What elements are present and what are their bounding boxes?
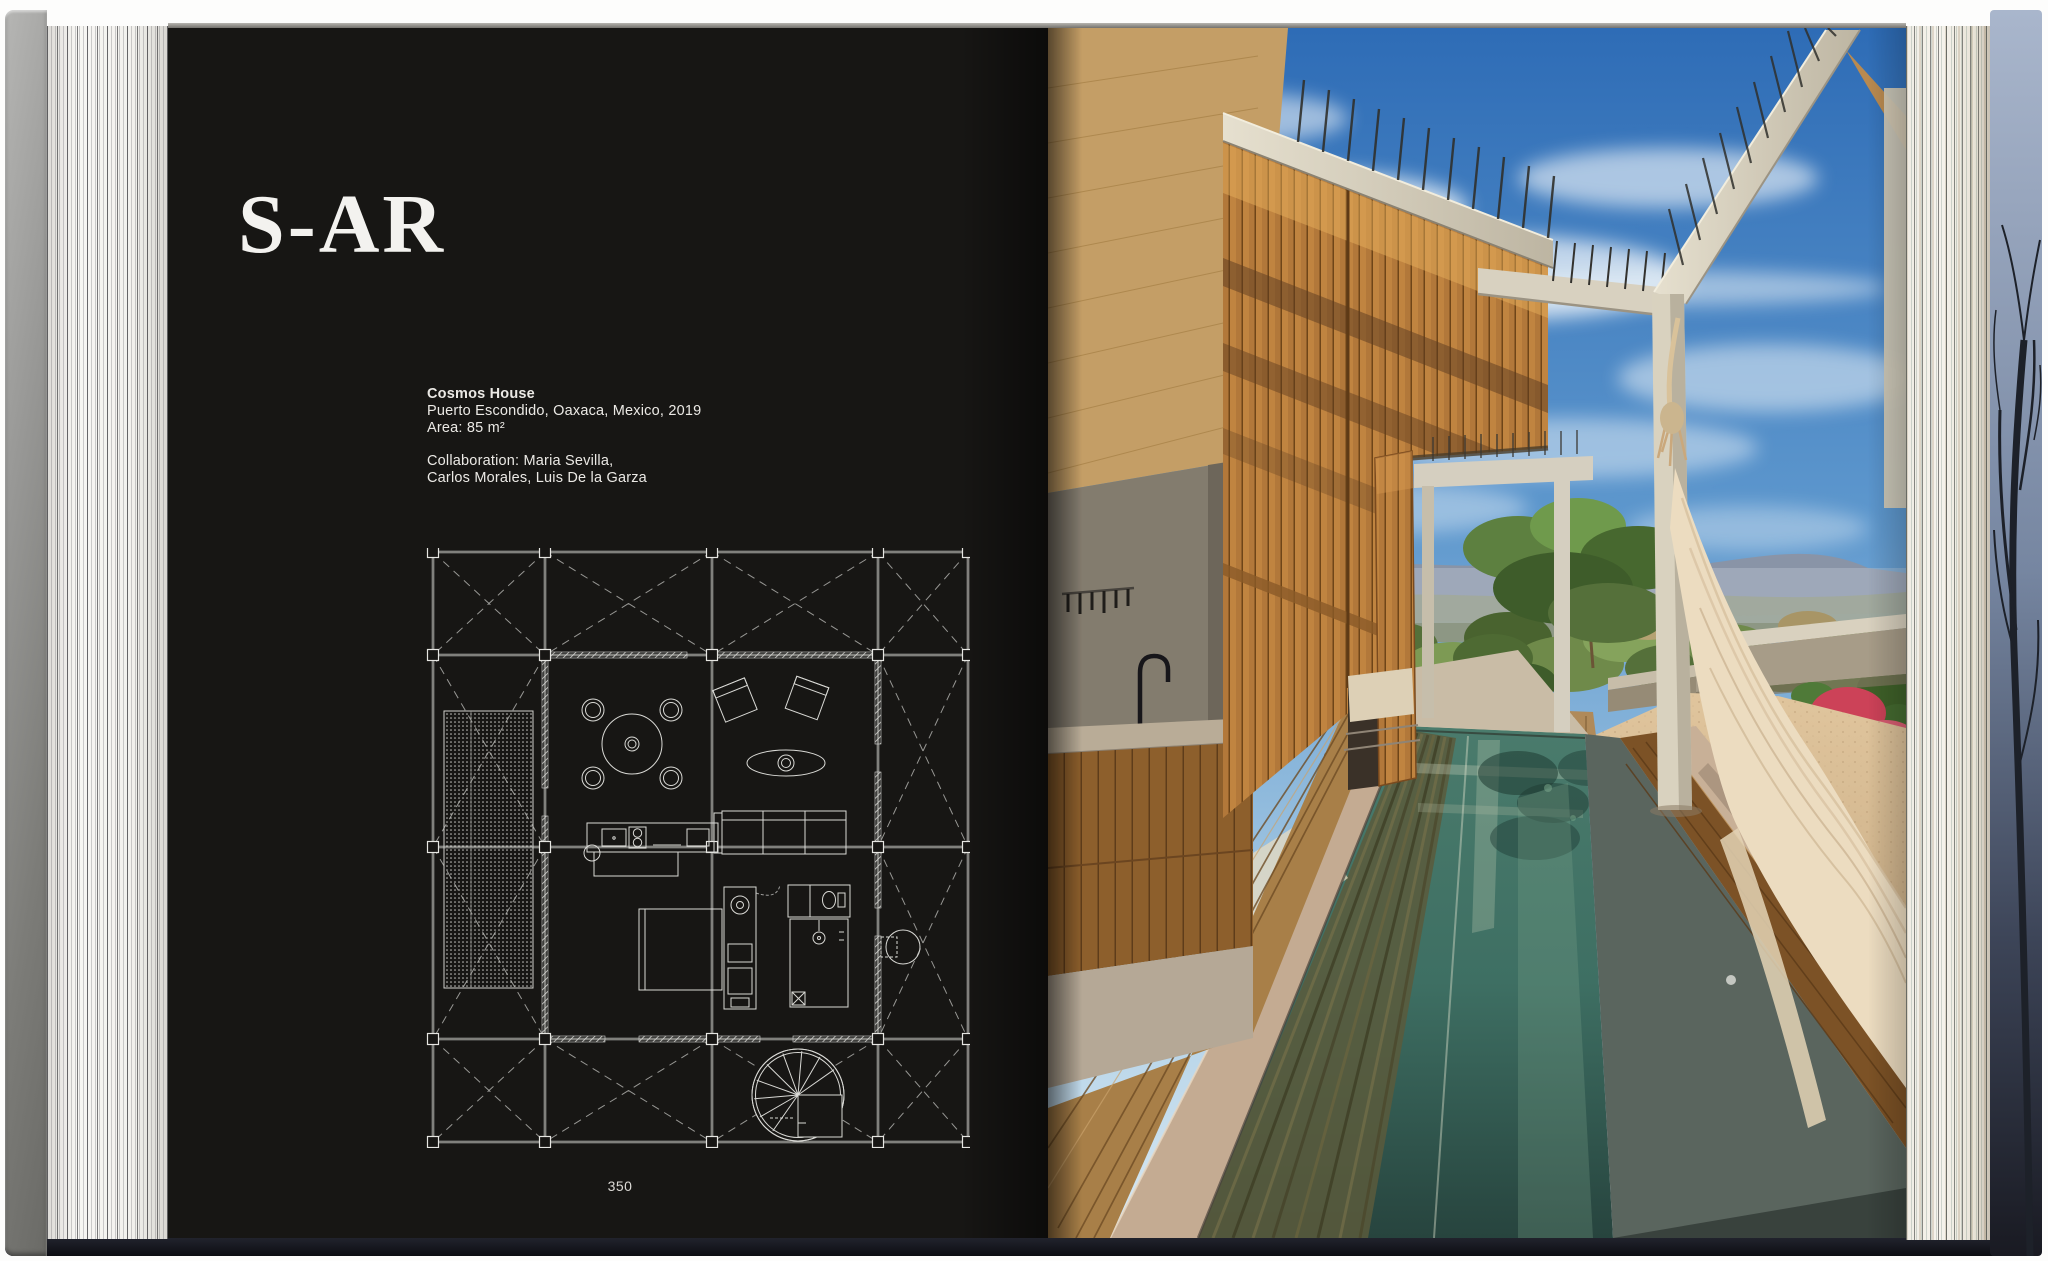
book-spread-photo: S-AR Cosmos House Puerto Escondido, Oaxa… <box>0 0 2048 1261</box>
right-page-photograph <box>1048 28 1906 1238</box>
project-location: Puerto Escondido, Oaxaca, Mexico, 2019 <box>427 403 701 420</box>
plan-kitchen <box>584 823 718 876</box>
plan-bathroom <box>788 885 850 1007</box>
book-cover-right <box>1990 10 2042 1256</box>
project-area: Area: 85 m² <box>427 420 701 437</box>
project-collaboration-1: Collaboration: Maria Sevilla, <box>427 453 701 470</box>
plan-dining-table <box>582 699 682 789</box>
plan-net-terrace <box>444 711 533 988</box>
left-page-stack-edges <box>47 26 168 1239</box>
right-page-stack-edges <box>1906 26 1990 1240</box>
architect-title: S-AR <box>238 176 446 273</box>
project-collaboration-2: Carlos Morales, Luis De la Garza <box>427 470 701 487</box>
plan-bed <box>639 909 722 990</box>
book-cover-left-edge <box>5 10 47 1256</box>
project-info: Cosmos House Puerto Escondido, Oaxaca, M… <box>427 386 701 487</box>
page-number: 350 <box>608 1178 633 1194</box>
left-page: S-AR Cosmos House Puerto Escondido, Oaxa… <box>168 28 1048 1238</box>
plan-outdoor-shower <box>881 930 920 964</box>
plan-lounge-chairs <box>713 676 829 776</box>
floor-plan-drawing <box>425 548 970 1148</box>
open-book: S-AR Cosmos House Puerto Escondido, Oaxa… <box>0 0 2048 1261</box>
project-name: Cosmos House <box>427 386 701 403</box>
plan-wardrobe <box>724 885 780 1009</box>
plan-spiral-stair <box>752 1049 844 1141</box>
